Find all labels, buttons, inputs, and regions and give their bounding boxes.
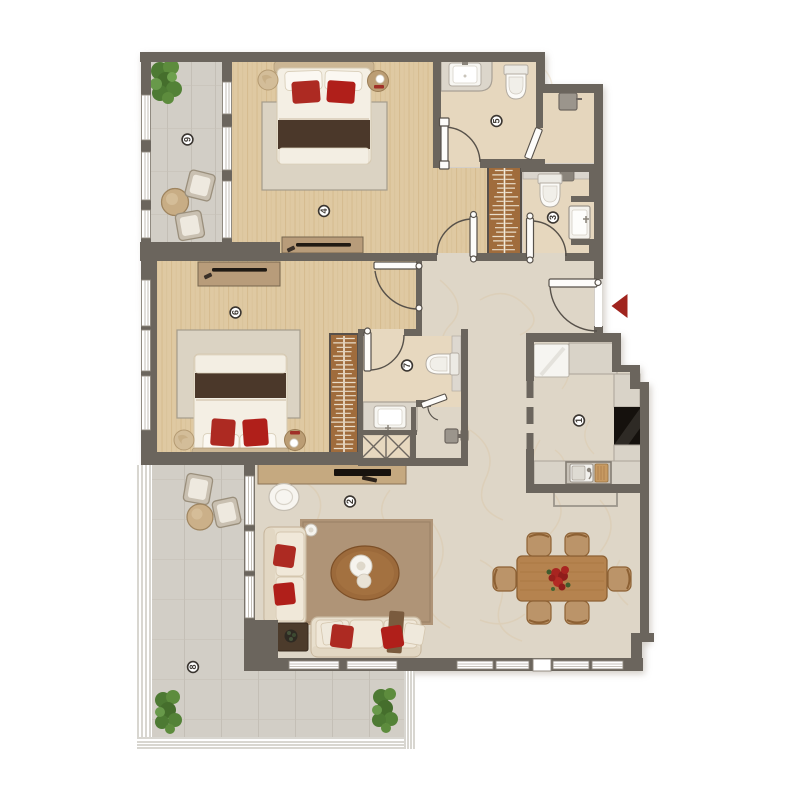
svg-text:3: 3 (548, 215, 558, 220)
svg-text:8: 8 (188, 664, 198, 669)
svg-text:1: 1 (574, 418, 584, 423)
svg-text:2: 2 (345, 499, 355, 504)
svg-text:9: 9 (183, 137, 193, 142)
svg-text:6: 6 (231, 310, 241, 315)
svg-text:5: 5 (492, 118, 502, 123)
svg-text:4: 4 (319, 208, 329, 213)
svg-text:7: 7 (402, 363, 412, 368)
